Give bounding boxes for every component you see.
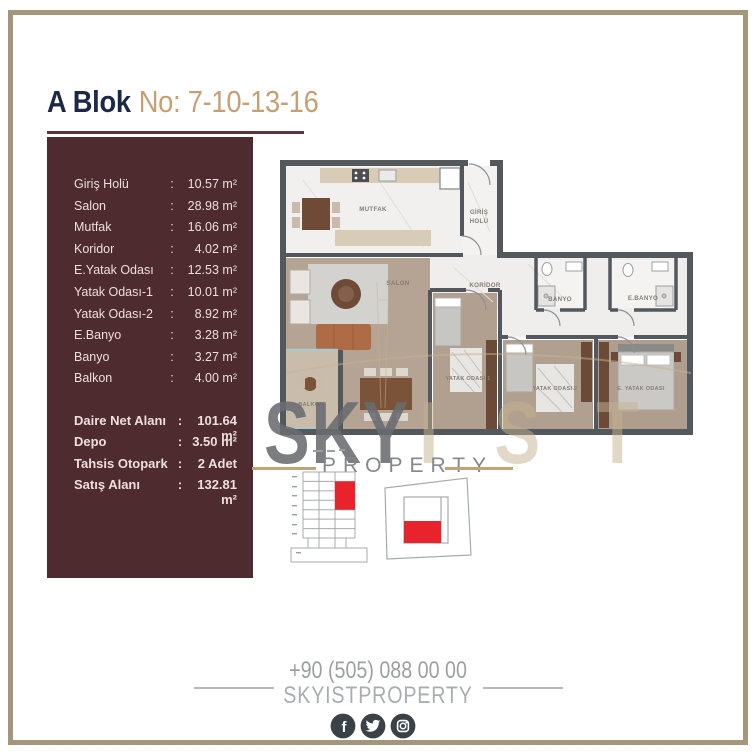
room-label-banyo: BANYO [548,296,572,303]
room-areas-panel: Giriş Holü:10.57 m² Salon:28.98 m² Mutfa… [47,137,253,578]
page-title: A BlokNo: 7-10-13-16 [47,84,319,120]
table-row: E.Banyo:3.28 m² [74,328,237,350]
social-icons: f [313,711,433,741]
table-row: Yatak Odası-1:10.01 m² [74,285,237,307]
site-plan-locator [378,468,483,568]
table-row: Banyo:3.27 m² [74,350,237,372]
table-row: Depo:3.50 m² [74,434,237,455]
room-label-balkon: BALKON [298,402,323,408]
block-name: A Blok [47,84,131,119]
totals-block: Daire Net Alanı:101.64 m² Depo:3.50 m² T… [74,413,237,499]
twitter-icon[interactable] [361,714,386,739]
table-row: E.Yatak Odası:12.53 m² [74,263,237,285]
room-label-yatak2: YATAK ODASI 2 [532,386,577,392]
footer-line-right [483,687,563,689]
table-row: Yatak Odası-2:8.92 m² [74,307,237,329]
highlighted-block [404,521,441,543]
title-divider [47,131,304,134]
table-row: Daire Net Alanı:101.64 m² [74,413,237,434]
footer-line-left [194,687,274,689]
svg-text:HOLÜ: HOLÜ [470,218,489,225]
room-label-koridor: KORİDOR [469,282,501,289]
table-row: Satış Alanı:132.81 m² [74,477,237,498]
room-label-eyatak: E. YATAK ODASI [617,386,665,392]
table-row: Tahsis Otopark:2 Adet [74,456,237,477]
highlighted-floors [335,481,355,509]
social-handle: SKYISTPROPERTY [283,682,472,710]
table-row: Mutfak:16.06 m² [74,220,237,242]
table-row: Giriş Holü:10.57 m² [74,177,237,199]
room-label-ebanyo: E.BANYO [628,295,658,302]
table-row: Salon:28.98 m² [74,199,237,221]
facebook-icon[interactable]: f [331,714,356,739]
room-label-mutfak: MUTFAK [359,206,387,213]
table-row: Koridor:4.02 m² [74,242,237,264]
room-label-giris: GİRİŞ [470,209,488,216]
elevation-grid [291,472,367,562]
floor-plan: MUTFAK GİRİŞ HOLÜ SALON KORİDOR BANYO E.… [278,152,698,442]
room-label-salon: SALON [386,280,409,287]
phone-number: +90 (505) 088 00 00 [289,657,467,685]
building-elevation-locator [283,445,383,570]
unit-numbers: No: 7-10-13-16 [139,84,319,119]
room-label-yatak1: YATAK ODASI 1 [445,376,490,382]
table-row: Balkon:4.00 m² [74,371,237,393]
instagram-icon[interactable] [391,714,416,739]
